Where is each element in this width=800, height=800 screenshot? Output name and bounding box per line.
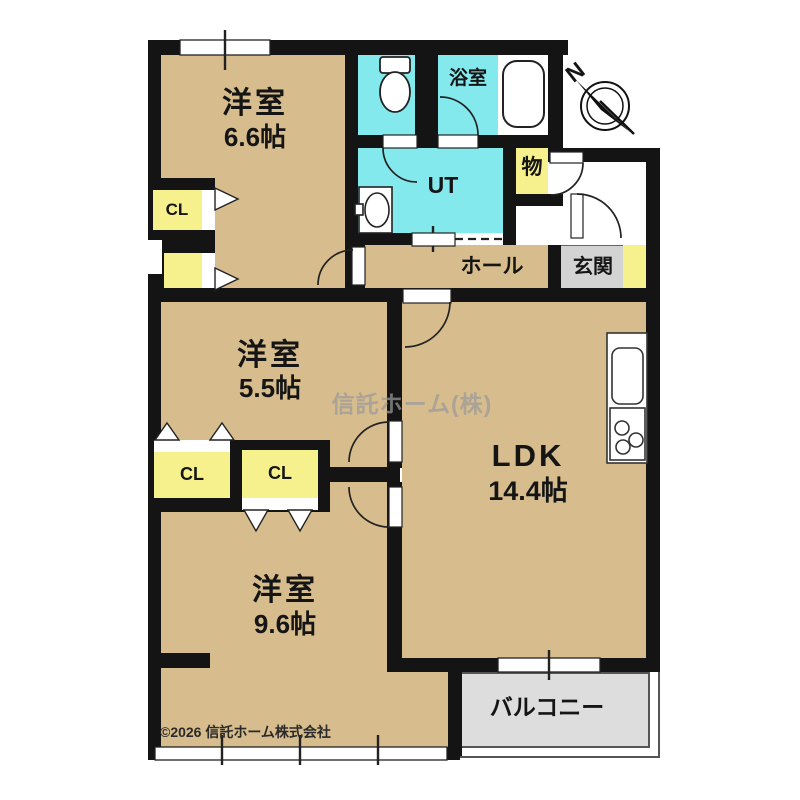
wall-wet-bottom xyxy=(345,135,563,148)
room-66-name: 洋室 xyxy=(195,88,315,120)
closet-66-label: CL xyxy=(157,201,197,219)
room-bathroom xyxy=(438,55,498,135)
room-ut-label: UT xyxy=(418,173,468,197)
wall-entrance-left xyxy=(548,245,561,290)
room-balcony-label: バルコニー xyxy=(482,695,612,719)
room-ldk-name: LDK xyxy=(458,440,598,473)
wall-left xyxy=(148,40,161,760)
room-toilet xyxy=(358,55,415,135)
floorplan: 洋室 6.6帖 洋室 5.5帖 洋室 9.6帖 LDK 14.4帖 浴室 UT … xyxy=(0,0,800,800)
wall-top-right xyxy=(548,148,660,162)
door-arc-storage xyxy=(551,163,583,195)
wall-balcony-left xyxy=(448,660,462,756)
room-66-size: 6.6帖 xyxy=(195,124,315,151)
wall-below-storage xyxy=(516,194,563,206)
copyright-text: ©2026 信託ホーム株式会社 xyxy=(160,722,331,742)
room-hall-label: ホール xyxy=(452,256,532,278)
closet-mid-left-label: CL xyxy=(172,465,212,484)
wall-top xyxy=(148,40,568,55)
wall-96-ldk xyxy=(387,482,402,660)
wall-bottom xyxy=(148,747,460,760)
room-55-name: 洋室 xyxy=(205,340,335,372)
room-entrance-label: 玄関 xyxy=(564,257,622,278)
room-western-5-5-ext xyxy=(330,440,387,468)
closet-mid-left-door xyxy=(154,440,230,452)
closet-mid-right-label: CL xyxy=(260,464,300,483)
closet-66-lower xyxy=(164,253,202,288)
closet-mid-right-door xyxy=(242,498,318,510)
wall-cl-ldk xyxy=(330,467,400,482)
room-bath-label: 浴室 xyxy=(437,69,499,89)
left-wall-opening xyxy=(148,240,162,274)
wall-ldk-bottom xyxy=(387,658,647,672)
room-ldk-size: 14.4帖 xyxy=(458,477,598,505)
wall-ut-bottom xyxy=(345,233,412,245)
closet-66-lower-door xyxy=(202,253,215,288)
room-storage-label: 物 xyxy=(516,157,548,179)
closet-66-door xyxy=(202,190,215,230)
watermark: 信託ホーム(株) xyxy=(322,385,502,419)
door-arc-entry xyxy=(577,194,621,238)
wall-right xyxy=(646,148,660,672)
wall-toilet-bath xyxy=(415,55,438,135)
wall-ut-right xyxy=(503,148,516,245)
room-55-size: 5.5帖 xyxy=(205,375,335,402)
shoe-cabinet xyxy=(623,245,647,290)
north-arrow-icon xyxy=(576,80,634,134)
room-western-9-6-ext1 xyxy=(330,482,387,513)
room-western-9-6-ext2 xyxy=(387,672,448,747)
bathtub-icon xyxy=(503,61,544,127)
door-leaf-entry xyxy=(571,194,583,238)
room-96-name: 洋室 xyxy=(220,575,350,607)
room-96-size: 9.6帖 xyxy=(220,611,350,638)
wall-96-stub xyxy=(148,653,210,668)
wall-mid-band xyxy=(148,288,660,302)
